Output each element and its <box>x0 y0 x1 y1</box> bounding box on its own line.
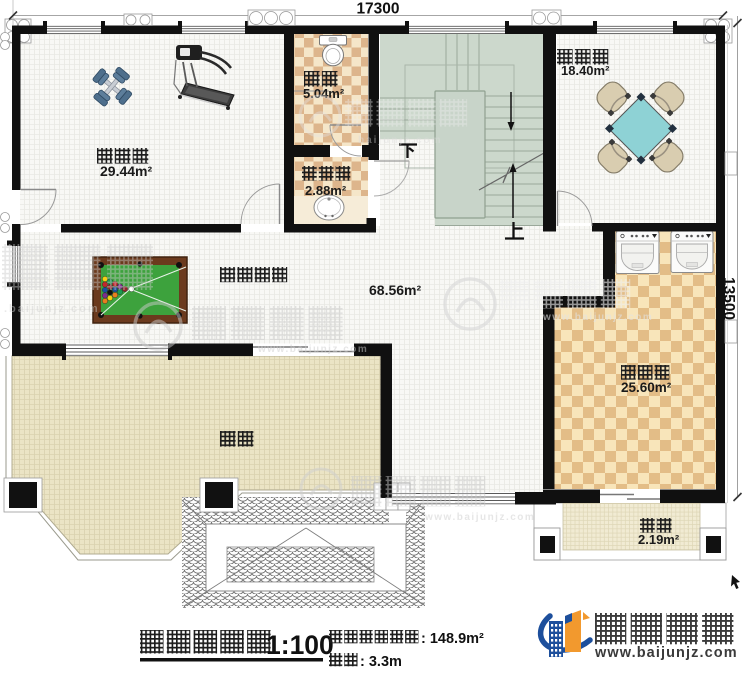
svg-text:68.56m²: 68.56m² <box>369 282 421 298</box>
svg-text:25.60m²: 25.60m² <box>621 380 672 395</box>
svg-text:.baijunjz.com: .baijunjz.com <box>4 303 100 315</box>
svg-text:29.44m²: 29.44m² <box>100 163 152 179</box>
svg-text:www.baijunjz.com: www.baijunjz.com <box>594 645 738 661</box>
svg-text:: 3.3m: : 3.3m <box>360 654 402 670</box>
svg-text:18.40m²: 18.40m² <box>561 63 610 78</box>
svg-text:: 148.9m²: : 148.9m² <box>421 631 484 647</box>
svg-text:13500: 13500 <box>720 277 737 320</box>
svg-text:1:100: 1:100 <box>266 630 334 660</box>
svg-text:www.baijunjz.com: www.baijunjz.com <box>257 344 368 355</box>
svg-text:2.19m²: 2.19m² <box>638 532 680 547</box>
svg-text:www.baijunjz.com: www.baijunjz.com <box>424 512 535 523</box>
svg-text:2.88m²: 2.88m² <box>305 183 347 198</box>
svg-text:www.baijunjz.com: www.baijunjz.com <box>542 312 653 323</box>
svg-text:17300: 17300 <box>356 1 399 18</box>
svg-text:baijunjz.com: baijunjz.com <box>358 135 443 146</box>
